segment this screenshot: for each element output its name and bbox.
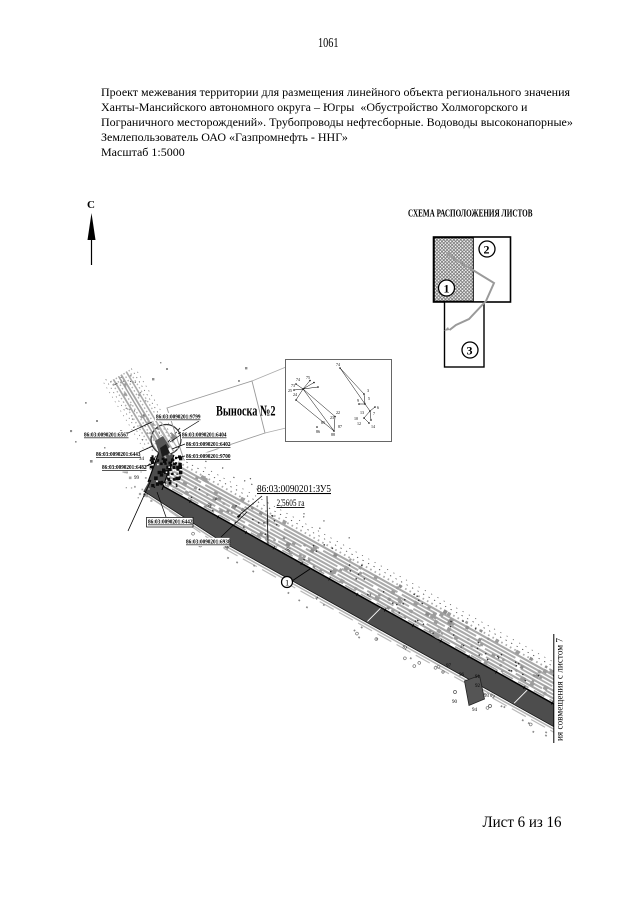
- svg-text:86:03:0090201:6482: 86:03:0090201:6482: [102, 464, 147, 471]
- svg-text:13: 13: [360, 410, 364, 415]
- svg-text:86:03:0090201:6442: 86:03:0090201:6442: [148, 519, 193, 526]
- svg-text:1: 1: [285, 578, 289, 588]
- svg-text:86:03:0090201:6567: 86:03:0090201:6567: [84, 432, 129, 439]
- svg-text:86: 86: [316, 429, 320, 434]
- svg-text:2: 2: [484, 243, 490, 257]
- svg-text:90: 90: [452, 700, 458, 705]
- svg-text:12: 12: [357, 421, 361, 426]
- svg-text:75: 75: [306, 375, 310, 380]
- svg-text:25: 25: [288, 388, 292, 393]
- svg-text:Лист 6 из 16: Лист 6 из 16: [483, 814, 562, 831]
- svg-text:93: 93: [484, 694, 490, 699]
- svg-text:1061: 1061: [318, 35, 339, 50]
- svg-text:88: 88: [331, 432, 335, 437]
- svg-text:24: 24: [293, 392, 297, 397]
- svg-text:1: 1: [444, 282, 450, 296]
- svg-text:С: С: [87, 199, 95, 211]
- svg-text:86:03:0090201:6402: 86:03:0090201:6402: [186, 441, 231, 448]
- svg-text:86:03:0090201:6443: 86:03:0090201:6443: [96, 451, 141, 458]
- svg-text:74: 74: [336, 362, 340, 367]
- svg-text:2,5605 га: 2,5605 га: [277, 498, 305, 508]
- svg-text:7: 7: [373, 411, 375, 416]
- svg-text:97: 97: [446, 664, 452, 669]
- svg-text:87: 87: [338, 424, 342, 429]
- svg-text:74: 74: [296, 377, 300, 382]
- svg-text:4: 4: [314, 596, 319, 602]
- svg-text:86:03:0090201:6938: 86:03:0090201:6938: [186, 539, 231, 546]
- svg-text:96: 96: [459, 673, 465, 678]
- svg-text:99: 99: [134, 476, 140, 481]
- svg-text:91: 91: [475, 675, 481, 680]
- svg-text:3: 3: [467, 344, 473, 358]
- svg-text:86:03:0090201:9700: 86:03:0090201:9700: [186, 453, 231, 460]
- svg-text:86:03:0090201:9799: 86:03:0090201:9799: [156, 414, 201, 421]
- svg-text:14: 14: [371, 424, 375, 429]
- svg-text:6: 6: [377, 405, 379, 410]
- svg-text:СХЕМА РАСПОЛОЖЕНИЯ ЛИСТОВ: СХЕМА РАСПОЛОЖЕНИЯ ЛИСТОВ: [408, 208, 533, 219]
- svg-text:3: 3: [367, 388, 369, 393]
- svg-text:23: 23: [330, 415, 334, 420]
- svg-text:86:03:0090201:ЗУ5: 86:03:0090201:ЗУ5: [257, 484, 331, 495]
- svg-text:9: 9: [357, 398, 359, 403]
- svg-text:Выноска №2: Выноска №2: [216, 404, 276, 420]
- svg-text:ия совмещения с листом 7: ия совмещения с листом 7: [555, 637, 565, 741]
- svg-text:92: 92: [475, 684, 481, 689]
- svg-text:5: 5: [368, 396, 370, 401]
- svg-text:86:03:0090201:6404: 86:03:0090201:6404: [182, 432, 227, 439]
- svg-text:85: 85: [321, 420, 325, 425]
- svg-text:94: 94: [472, 708, 478, 713]
- svg-text:22: 22: [336, 410, 340, 415]
